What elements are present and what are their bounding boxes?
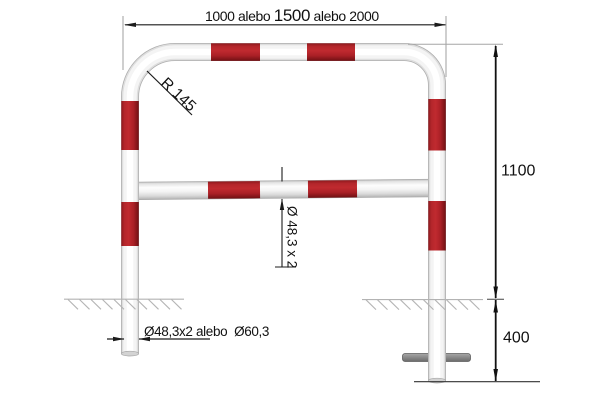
svg-text:Ø 48,3 x 2: Ø 48,3 x 2 <box>285 206 300 268</box>
svg-text:Ø48,3x2 alebo Ø60,3: Ø48,3x2 alebo Ø60,3 <box>144 324 269 339</box>
svg-text:1000 alebo 1500 alebo 2000: 1000 alebo 1500 alebo 2000 <box>205 6 379 25</box>
svg-text:400: 400 <box>503 330 530 347</box>
svg-text:R 145: R 145 <box>157 74 199 115</box>
svg-text:1100: 1100 <box>501 163 536 180</box>
